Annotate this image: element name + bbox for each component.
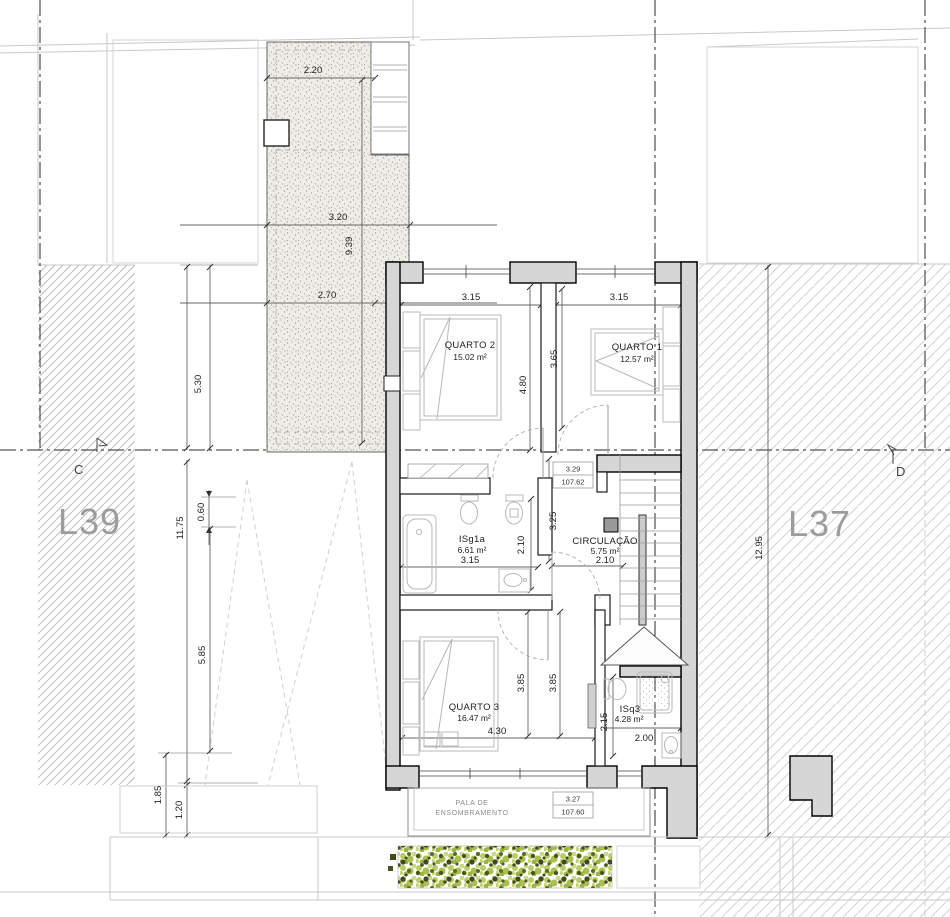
bidet-isg1a: [506, 495, 524, 524]
dim-left-lower: 5.85: [197, 646, 208, 665]
dim-quarto3-depth-b: 3.85: [548, 674, 559, 693]
dim-quarto1-width: 3.15: [610, 292, 629, 303]
floor-plan-svg: 3.29 107.62 PALA DE ENSOMBRAMENTO 3.27 1…: [0, 0, 950, 917]
room-isg1a-name: ISg1a: [459, 534, 486, 545]
dim-quarto3-depth-a: 3.85: [516, 674, 527, 693]
lot-l39-label: L39: [58, 501, 121, 542]
dim-quarto1-depth: 3.65: [549, 350, 560, 369]
dim-right-total: 12.95: [754, 536, 765, 560]
lot-l37-label: L37: [788, 503, 851, 544]
dimension-extension-lines: [158, 265, 258, 837]
sink-isg1a: [499, 569, 530, 592]
bathroom-window-panel: [408, 464, 488, 478]
terrace-pergola: [371, 42, 409, 154]
room-isg1a-area: 6.61 m²: [458, 545, 487, 555]
canopy: PALA DE ENSOMBRAMENTO 3.27 107.60: [408, 788, 650, 836]
dim-isq3-depth: 2.15: [599, 713, 610, 732]
dim-isg1a-width: 3.15: [461, 555, 480, 566]
bathtub: [403, 515, 436, 593]
canopy-label-line1: PALA DE: [456, 800, 489, 807]
dim-quarto2-width: 3.15: [462, 292, 481, 303]
section-marker-d-label: D: [896, 464, 905, 479]
level-floor-absolute: 107.62: [562, 478, 585, 487]
bed-quarto2: [403, 312, 501, 430]
dim-terrace-top-width: 2.20: [304, 65, 323, 76]
room-quarto3-name: QUARTO 3: [449, 702, 500, 713]
neighbour-roof-left: [113, 40, 258, 263]
sliding-door: [588, 684, 596, 728]
room-quarto1-name: QUARTO 1: [612, 342, 663, 353]
left-wall: [386, 262, 400, 790]
room-quarto3-area: 16.47 m²: [457, 713, 491, 723]
dim-bottom-left-a: 1.85: [153, 786, 164, 805]
level-marker-floor: 3.29 107.62: [553, 462, 593, 488]
toilet-isq3: [604, 679, 626, 700]
shaft: [604, 518, 618, 532]
section-marker-c-label: C: [74, 462, 83, 477]
room-quarto2-area: 15.02 m²: [453, 352, 487, 362]
sink-isq3: [662, 733, 681, 758]
floor-plan-canvas: 3.29 107.62 PALA DE ENSOMBRAMENTO 3.27 1…: [0, 0, 950, 917]
dim-left-total: 11.75: [175, 516, 186, 539]
level-marker-canopy: 3.27 107.60: [553, 792, 593, 818]
terrace-box: [264, 120, 289, 146]
canopy-label-line2: ENSOMBRAMENTO: [435, 810, 508, 817]
room-quarto1-area: 12.57 m²: [620, 354, 654, 364]
dim-terrace-lower-width: 2.70: [318, 290, 337, 301]
dim-bottom-left-b: 1.20: [174, 801, 185, 820]
dim-isq3-width: 2.00: [635, 733, 654, 744]
view-cones: [205, 462, 388, 785]
hedge: [388, 846, 612, 888]
stair-break-triangle: [601, 627, 688, 665]
right-wall: [681, 262, 697, 838]
dim-arrow-up: [206, 491, 212, 497]
neighbour-roof-right: [707, 47, 918, 263]
dim-terrace-length: 9.39: [344, 237, 355, 256]
room-isq3-area: 4.28 m²: [615, 714, 644, 724]
room-quarto2-name: QUARTO 2: [445, 340, 496, 351]
side-window: [384, 376, 400, 391]
level-canopy-relative: 3.27: [566, 795, 581, 804]
dim-circulacao-width: 2.10: [596, 555, 615, 566]
dim-left-offset: 0.60: [196, 503, 207, 522]
dim-quarto3-width: 4.30: [488, 726, 507, 737]
bed-quarto1: [591, 307, 680, 422]
lot-l37-hatch: [699, 264, 950, 917]
stair-divider-wall: [639, 515, 646, 625]
bed-quarto3: [403, 637, 498, 755]
dim-quarto2-depth: 4.80: [518, 376, 529, 395]
level-floor-relative: 3.29: [566, 465, 581, 474]
shower-isq3: [637, 672, 672, 713]
toilet-isg1a: [461, 495, 479, 524]
level-canopy-absolute: 107.60: [562, 808, 585, 817]
dim-circulacao-depth: 3.25: [548, 512, 559, 531]
dim-isg1a-depth: 2.10: [516, 536, 527, 555]
dim-terrace-width: 3.20: [329, 212, 348, 223]
dim-left-upper: 5.30: [193, 375, 204, 394]
